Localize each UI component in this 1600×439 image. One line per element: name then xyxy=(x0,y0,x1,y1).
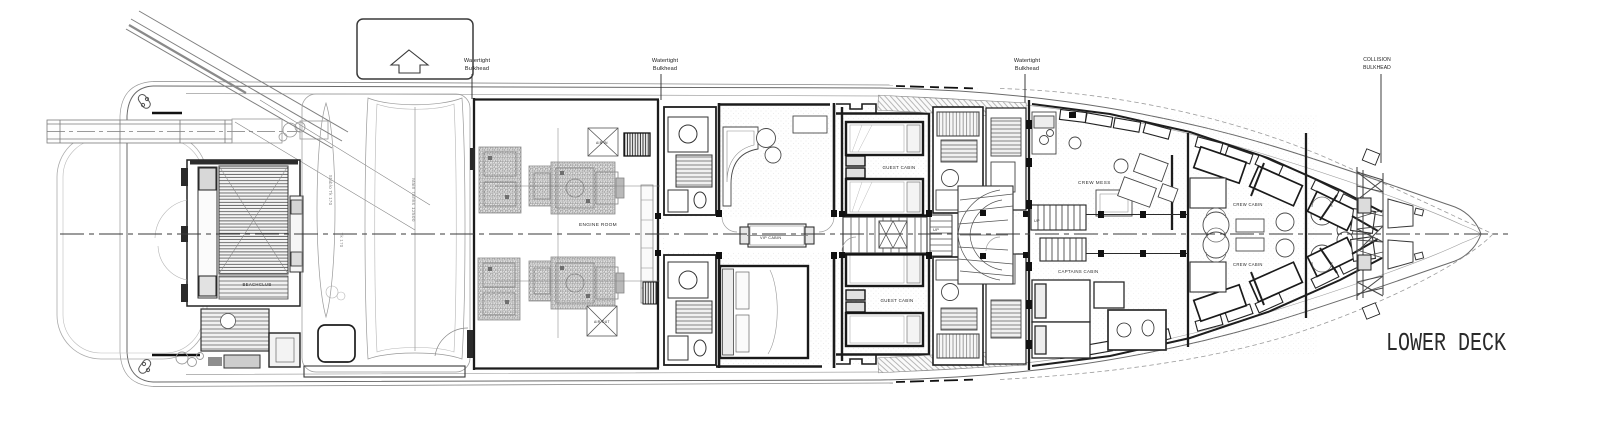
svg-text:Bulkhead: Bulkhead xyxy=(653,66,677,72)
svg-text:Bulkhead: Bulkhead xyxy=(1015,66,1039,72)
svg-text:UP: UP xyxy=(1034,219,1040,223)
svg-text:Watertight: Watertight xyxy=(464,58,491,64)
svg-text:CREW CABIN: CREW CABIN xyxy=(1233,202,1263,207)
svg-text:CREW CABIN: CREW CABIN xyxy=(1233,262,1263,267)
svg-text:COLLISION: COLLISION xyxy=(1363,57,1391,63)
svg-text:BULKHEAD: BULKHEAD xyxy=(1363,65,1391,71)
svg-text:AIR IN: AIR IN xyxy=(596,141,608,145)
svg-text:Main Tanks 12500: Main Tanks 12500 xyxy=(411,178,416,222)
svg-text:ENGINE ROOM: ENGINE ROOM xyxy=(579,222,617,228)
svg-text:BEACHCLUB: BEACHCLUB xyxy=(243,282,272,287)
svg-text:CAPTAINS CABIN: CAPTAINS CABIN xyxy=(1058,269,1098,274)
svg-text:CREW MESS: CREW MESS xyxy=(1078,180,1111,185)
svg-text:LOWER DECK: LOWER DECK xyxy=(1386,328,1506,358)
svg-text:GUEST CABIN: GUEST CABIN xyxy=(883,165,916,170)
svg-text:VIP CABIN: VIP CABIN xyxy=(760,236,781,240)
svg-text:Tk 170: Tk 170 xyxy=(339,233,344,248)
svg-text:AIR OUT: AIR OUT xyxy=(594,320,610,324)
svg-text:Stab/o Tk 170: Stab/o Tk 170 xyxy=(328,175,333,206)
svg-text:Bulkhead: Bulkhead xyxy=(465,66,489,72)
svg-text:GUEST CABIN: GUEST CABIN xyxy=(881,298,914,303)
svg-text:Watertight: Watertight xyxy=(1014,58,1041,64)
svg-text:Watertight: Watertight xyxy=(652,58,679,64)
svg-text:UP: UP xyxy=(933,227,939,232)
